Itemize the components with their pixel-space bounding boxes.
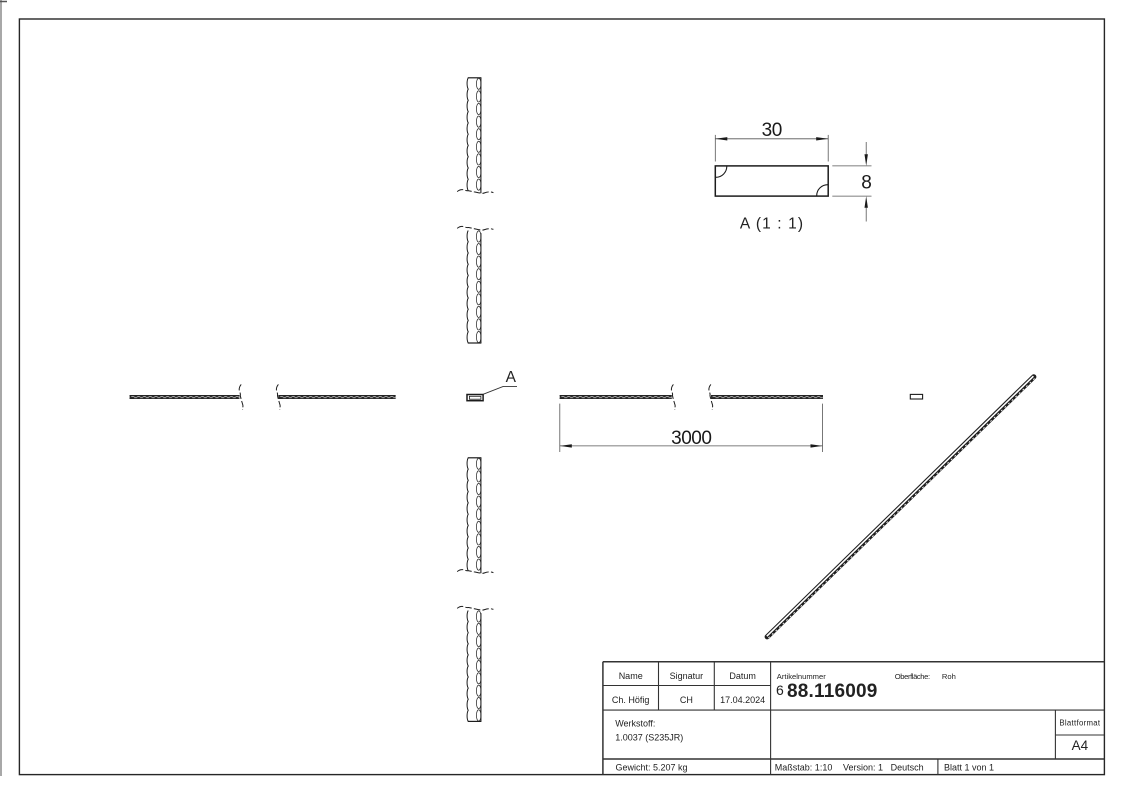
svg-text:Version: 1: Version: 1 xyxy=(843,762,883,772)
svg-text:Oberfläche:: Oberfläche: xyxy=(895,672,930,681)
svg-text:30: 30 xyxy=(762,120,782,141)
svg-text:Maßstab: 1:10: Maßstab: 1:10 xyxy=(775,762,833,772)
svg-text:Blatt 1 von 1: Blatt 1 von 1 xyxy=(944,762,994,772)
svg-text:17.04.2024: 17.04.2024 xyxy=(720,695,765,705)
svg-text:1.0037 (S235JR): 1.0037 (S235JR) xyxy=(615,732,683,742)
svg-text:Datum: Datum xyxy=(729,671,756,681)
svg-text:6: 6 xyxy=(776,682,784,698)
svg-text:Roh: Roh xyxy=(942,672,956,681)
svg-text:8: 8 xyxy=(861,172,871,193)
svg-text:A4: A4 xyxy=(1072,738,1089,753)
svg-text:Signatur: Signatur xyxy=(670,671,704,681)
svg-text:Deutsch: Deutsch xyxy=(891,762,924,772)
svg-text:Werkstoff:: Werkstoff: xyxy=(615,719,655,729)
svg-text:A: A xyxy=(506,369,517,386)
svg-text:Gewicht: 5.207 kg: Gewicht: 5.207 kg xyxy=(616,762,688,772)
svg-text:88.116009: 88.116009 xyxy=(787,681,878,702)
svg-text:A (1 : 1): A (1 : 1) xyxy=(740,216,804,233)
svg-text:Blattformat: Blattformat xyxy=(1059,718,1101,727)
svg-text:CH: CH xyxy=(680,695,693,705)
svg-text:Ch. Höfig: Ch. Höfig xyxy=(612,695,650,705)
svg-text:3000: 3000 xyxy=(671,428,711,449)
svg-text:Artikelnummer: Artikelnummer xyxy=(777,672,826,681)
svg-text:Name: Name xyxy=(619,671,643,681)
